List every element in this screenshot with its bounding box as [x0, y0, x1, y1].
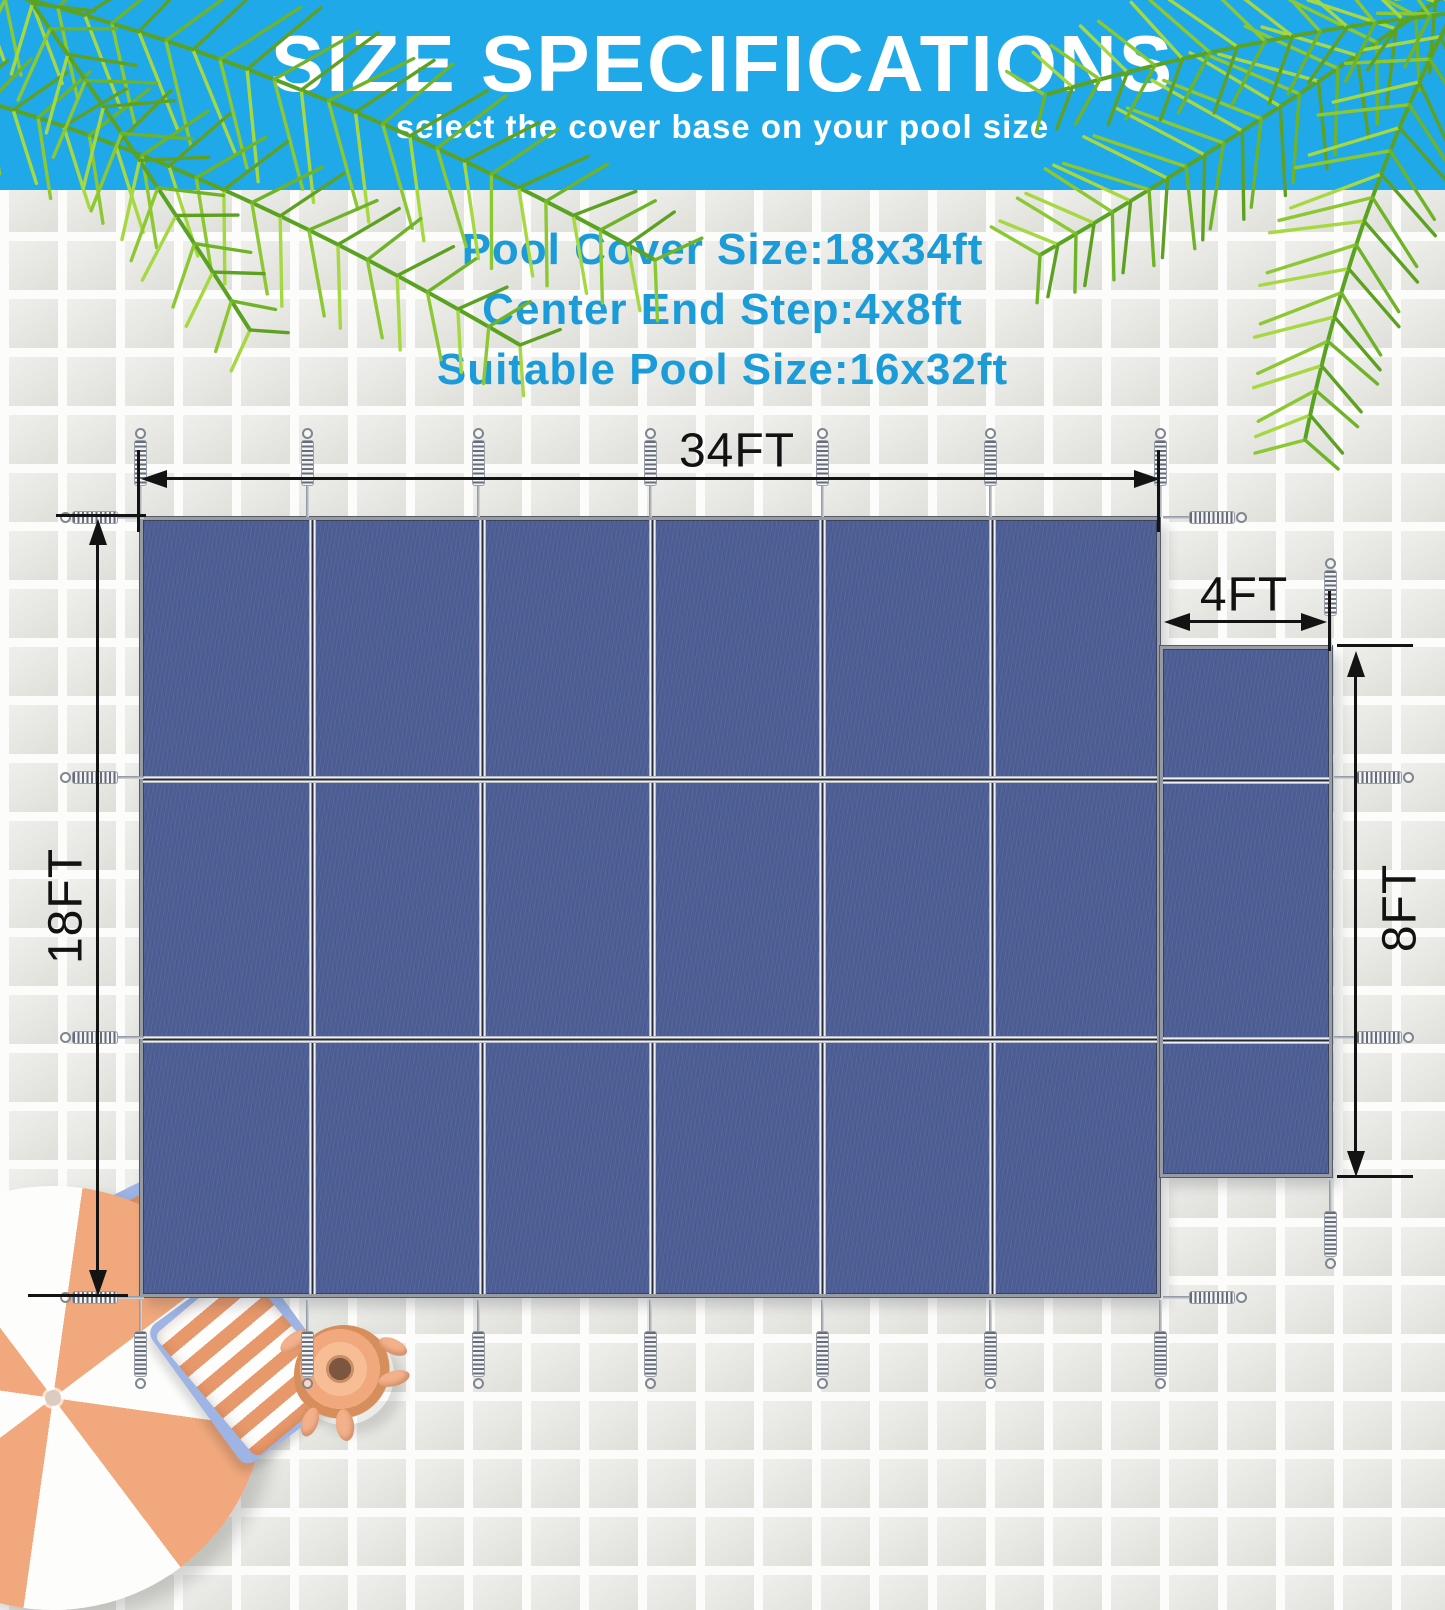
step-width-label: 4FT	[1200, 568, 1288, 623]
spec-line-step-size: Center End Step:4x8ft	[0, 280, 1445, 340]
panel-seam	[649, 520, 656, 1294]
step-height-label: 8FT	[1373, 864, 1428, 952]
tension-spring-icon	[60, 771, 144, 784]
panel-seam	[1163, 777, 1329, 784]
tension-spring-icon	[1163, 511, 1247, 524]
extension-tick	[137, 450, 140, 532]
tension-spring-icon	[1324, 1180, 1337, 1269]
panel-seam	[479, 520, 486, 1294]
pool-spec-text: Pool Cover Size:18x34ft Center End Step:…	[0, 220, 1445, 400]
panel-seam	[143, 776, 1157, 783]
extension-tick	[56, 514, 146, 517]
cover-width-label: 34FT	[679, 424, 795, 479]
pool-cover-main-panel	[140, 517, 1160, 1297]
extension-tick	[1337, 1175, 1413, 1178]
tension-spring-icon	[816, 1300, 829, 1389]
panel-seam	[819, 520, 826, 1294]
tension-spring-icon	[644, 428, 657, 517]
panel-seam	[143, 1036, 1157, 1043]
pool-cover-size-spec-image: { "banner": { "title": "SIZE SPECIFICATI…	[0, 0, 1445, 1445]
tension-spring-icon	[1163, 1291, 1247, 1304]
arrow-down-icon	[89, 1270, 107, 1296]
tension-spring-icon	[301, 428, 314, 517]
tension-spring-icon	[984, 428, 997, 517]
page-subtitle: select the cover base on your pool size	[0, 106, 1445, 148]
panel-seam	[989, 520, 996, 1294]
arrow-left-icon	[1164, 613, 1190, 631]
tension-spring-icon	[1334, 771, 1414, 784]
tension-spring-icon	[134, 1300, 147, 1389]
tension-spring-icon	[472, 428, 485, 517]
height-dimension-line	[96, 530, 99, 1280]
width-dimension-line	[152, 477, 1148, 480]
arrow-up-icon	[89, 519, 107, 545]
pool-cover-step-panel	[1160, 646, 1332, 1177]
extension-tick	[1337, 644, 1413, 647]
tension-spring-icon	[816, 428, 829, 517]
cover-height-label: 18FT	[39, 848, 94, 964]
tension-spring-icon	[644, 1300, 657, 1389]
tension-spring-icon	[984, 1300, 997, 1389]
tension-spring-icon	[60, 1031, 144, 1044]
header-banner: SIZE SPECIFICATIONS select the cover bas…	[0, 0, 1445, 190]
tension-spring-icon	[1334, 1031, 1414, 1044]
tension-spring-icon	[472, 1300, 485, 1389]
panel-seam	[1163, 1037, 1329, 1044]
step-height-dimension-line	[1354, 662, 1357, 1167]
arrow-down-icon	[1347, 1151, 1365, 1177]
tension-spring-icon	[1154, 1300, 1167, 1389]
panel-seam	[309, 520, 316, 1294]
extension-tick	[28, 1294, 128, 1297]
arrow-left-icon	[141, 470, 167, 488]
arrow-up-icon	[1347, 651, 1365, 677]
spec-line-suitable-size: Suitable Pool Size:16x32ft	[0, 340, 1445, 400]
spec-line-cover-size: Pool Cover Size:18x34ft	[0, 220, 1445, 280]
tension-spring-icon	[301, 1300, 314, 1389]
page-title: SIZE SPECIFICATIONS	[0, 22, 1445, 106]
arrow-right-icon	[1301, 613, 1327, 631]
extension-tick	[1157, 450, 1160, 532]
extension-tick	[1328, 591, 1331, 651]
